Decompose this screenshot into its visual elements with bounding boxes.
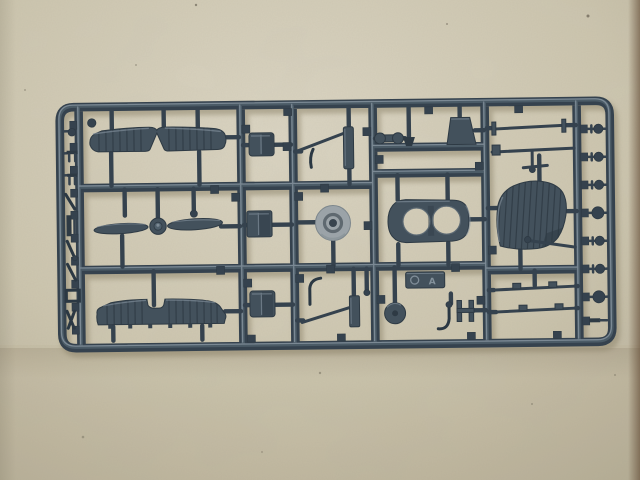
cowl-block-bottom (250, 291, 275, 317)
ball-pin (68, 128, 76, 136)
nameplate-part: A (406, 272, 445, 288)
main-wheel-disc-part (315, 205, 350, 240)
cowl-block-middle (247, 211, 272, 237)
tail-wheel-disc-part (384, 303, 405, 324)
photo-model-kit-sprue: A (0, 0, 640, 480)
photo-right-edge (628, 0, 640, 480)
rigging-spool-part (374, 133, 403, 144)
nameplate-letter: A (429, 277, 436, 287)
sprue-photo-svg: A (0, 0, 640, 480)
cowl-block-top (249, 133, 274, 156)
thick-strut (66, 215, 74, 236)
